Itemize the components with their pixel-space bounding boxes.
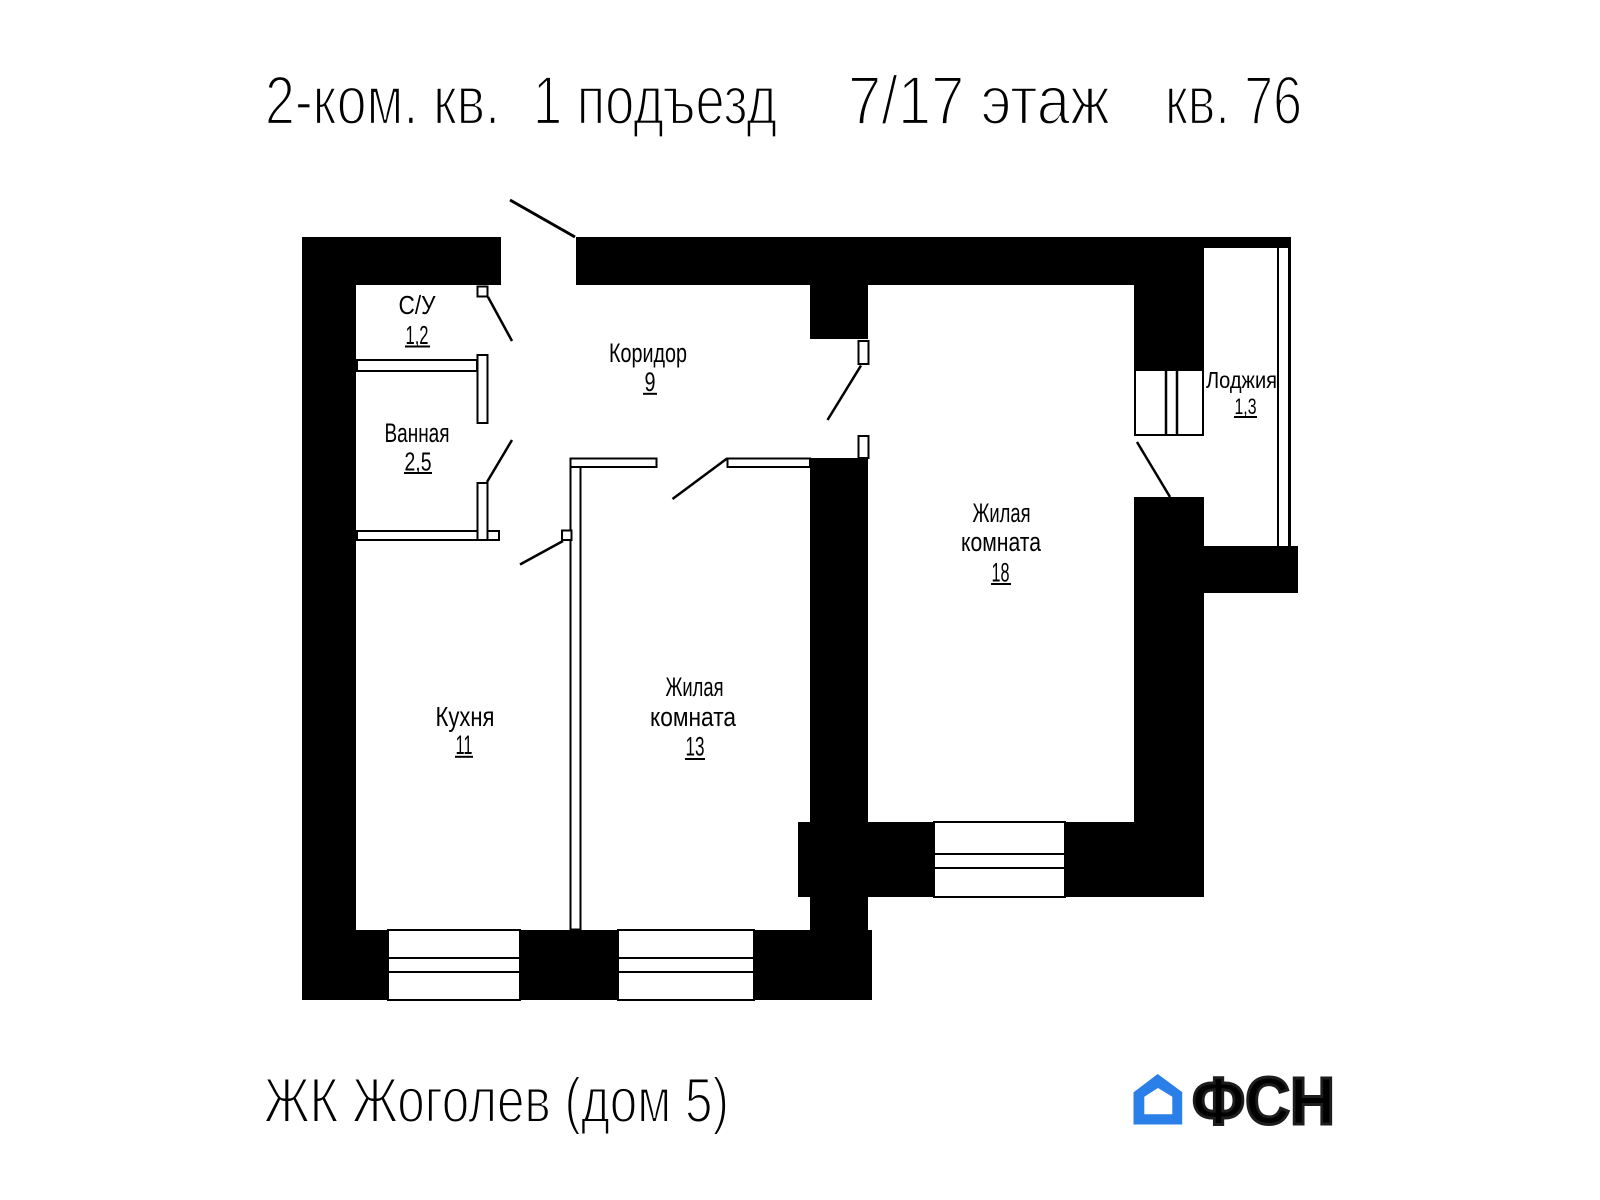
svg-text:7/17 этаж: 7/17 этаж (848, 62, 1110, 139)
svg-text:Ванная: Ванная (385, 418, 450, 448)
svg-text:комната: комната (961, 527, 1042, 557)
svg-text:кв. 76: кв. 76 (1165, 62, 1302, 139)
svg-text:9: 9 (645, 367, 656, 397)
svg-text:Кухня: Кухня (436, 701, 495, 732)
svg-text:Жилая: Жилая (666, 672, 724, 702)
svg-text:ФСН: ФСН (1192, 1064, 1335, 1139)
svg-text:1 подъезд: 1 подъезд (533, 62, 777, 139)
svg-text:Коридор: Коридор (609, 338, 687, 368)
svg-text:С/У: С/У (399, 290, 436, 320)
svg-text:Жилая: Жилая (973, 498, 1031, 528)
svg-text:2-ком. кв.: 2-ком. кв. (265, 62, 500, 139)
svg-text:ЖК Жоголев (дом 5): ЖК Жоголев (дом 5) (264, 1066, 729, 1136)
svg-text:13: 13 (686, 732, 705, 762)
svg-text:Лоджия: Лоджия (1206, 367, 1277, 393)
svg-text:11: 11 (456, 730, 473, 760)
svg-text:комната: комната (650, 702, 737, 732)
svg-text:1,3: 1,3 (1235, 394, 1257, 419)
